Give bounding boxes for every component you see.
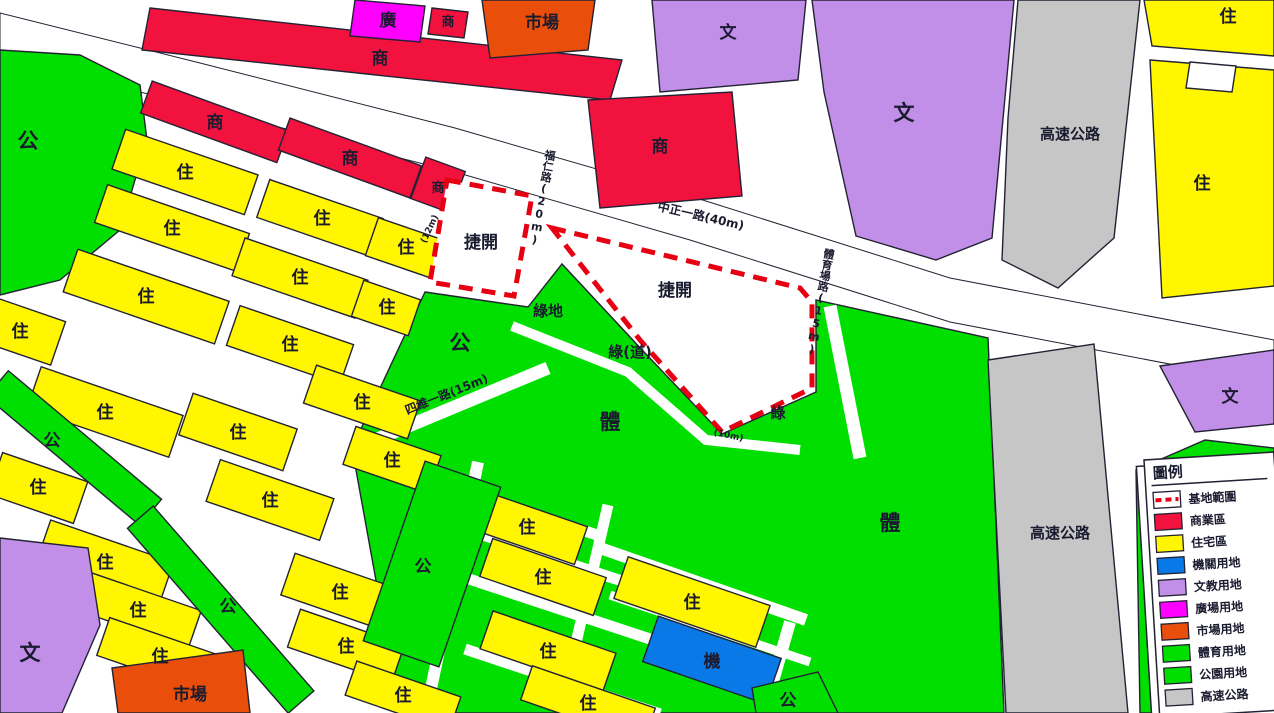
zone-label-residential: 住: [395, 685, 412, 706]
zone-label-residential: 住: [97, 402, 114, 423]
zone-label-residential: 住: [138, 286, 155, 307]
zone-residential-tr2: [1150, 60, 1274, 298]
legend-swatch-sports: [1162, 645, 1190, 663]
zone-residential-block: [0, 299, 66, 365]
zone-label-residential: 住: [519, 517, 536, 538]
legend-title: 圖例: [1152, 463, 1183, 483]
zone-label-residential: 住: [1194, 173, 1211, 194]
zone-label-sports: 體: [880, 511, 901, 535]
zone-culture-small: [652, 0, 806, 92]
zone-label-plaza: 廣: [380, 10, 397, 31]
zone-label-residential: 住: [30, 477, 47, 498]
zone-label-residential: 住: [230, 422, 247, 443]
legend-swatch-highway: [1165, 688, 1193, 706]
zone-label-residential: 住: [97, 552, 114, 573]
zone-label-commercial: 商: [372, 48, 389, 69]
zone-label-commercial: 商: [441, 14, 454, 30]
legend-swatch-residential: [1156, 535, 1184, 553]
zone-label-residential: 住: [314, 208, 331, 229]
zone-label-residential: 住: [684, 592, 701, 613]
zone-label-culture: 文: [720, 22, 738, 43]
zone-label-residential: 住: [292, 267, 309, 288]
legend-item-label: 商業區: [1189, 511, 1226, 528]
site-label: 捷開: [464, 232, 498, 253]
zone-label-culture: 文: [1222, 386, 1240, 407]
zone-label-highway: 高速公路: [1040, 125, 1101, 143]
zone-label-residential: 住: [262, 490, 279, 511]
legend-item-label: 體育用地: [1197, 642, 1246, 660]
zone-label-residential: 住: [580, 693, 597, 713]
legend-item-label: 機關用地: [1192, 554, 1241, 572]
zone-label-residential: 住: [398, 237, 415, 258]
zone-label-institution: 機: [704, 651, 721, 672]
legend-item-label: 市場用地: [1196, 620, 1245, 638]
zone-label-residential: 住: [535, 567, 552, 588]
legend-item-label: 高速公路: [1200, 686, 1250, 704]
zone-label-market: 市場: [173, 684, 207, 705]
zone-label-residential: 住: [282, 334, 299, 355]
zone-residential-tr1: [1144, 0, 1274, 56]
zone-label-sports: 體: [600, 410, 621, 434]
zone-label-market: 市場: [525, 12, 559, 33]
zone-label-residential: 住: [354, 392, 371, 413]
zoning-map: 商 廣 商 市場 商 文 文 高速公路 住 住 文 商 商 商 公 住 住 住 …: [0, 0, 1274, 713]
zone-label-residential: 住: [338, 636, 355, 657]
zoning-map-viewport: 商 廣 商 市場 商 文 文 高速公路 住 住 文 商 商 商 公 住 住 住 …: [0, 0, 1274, 713]
zone-culture-bl: [0, 538, 100, 713]
zone-label-green-land: 綠地: [533, 302, 563, 320]
legend-swatch-commercial: [1154, 513, 1182, 531]
zone-label-residential: 住: [540, 641, 557, 662]
zone-label-residential: 住: [384, 450, 401, 471]
legend-item-label: 住宅區: [1191, 533, 1228, 550]
zone-label-culture: 文: [20, 641, 42, 665]
legend-item-label: 廣場用地: [1195, 598, 1244, 616]
legend-item-label: 基地範圍: [1187, 488, 1237, 506]
zone-label-park: 公: [220, 597, 237, 617]
zone-label-residential: 住: [12, 321, 29, 342]
zone-label-green: 綠: [770, 404, 786, 422]
zone-label-residential: 住: [152, 646, 169, 667]
zone-label-park: 公: [780, 691, 797, 711]
zone-label-park: 公: [450, 331, 471, 355]
legend-swatch-market: [1161, 623, 1189, 641]
zone-label-commercial: 商: [652, 136, 669, 157]
legend-swatch-institution: [1157, 557, 1185, 575]
zone-label-residential: 住: [332, 582, 349, 603]
legend-item-label: 文教用地: [1193, 576, 1242, 594]
zone-label-residential: 住: [164, 218, 181, 239]
zone-culture-big: [812, 0, 1014, 260]
zone-label-commercial: 商: [342, 148, 359, 169]
zone-label-park: 公: [18, 129, 39, 153]
zone-label-park: 公: [44, 431, 61, 451]
zone-label-commercial: 商: [431, 180, 444, 196]
legend-swatch-plaza: [1160, 601, 1188, 619]
zone-label-park: 公: [415, 557, 432, 577]
zone-label-green-way: 綠(道): [608, 343, 652, 361]
zone-label-culture: 文: [894, 101, 916, 125]
legend-item-label: 公園用地: [1199, 664, 1248, 682]
site-label: 捷開: [658, 280, 692, 301]
zone-label-residential: 住: [177, 162, 194, 183]
zone-notch: [1186, 62, 1236, 92]
zone-label-residential: 住: [379, 297, 396, 318]
legend: 圖例 基地範圍 商業區 住宅區 機關用地 文教用地 廣場用地: [1136, 452, 1274, 713]
zone-label-highway: 高速公路: [1030, 524, 1091, 542]
zone-label-residential: 住: [1220, 6, 1237, 27]
zone-label-residential: 住: [130, 600, 147, 621]
legend-swatch-park: [1164, 667, 1192, 685]
zone-label-commercial: 商: [207, 112, 224, 133]
zone-highway-north: [1002, 0, 1140, 288]
legend-swatch-culture: [1158, 579, 1186, 597]
